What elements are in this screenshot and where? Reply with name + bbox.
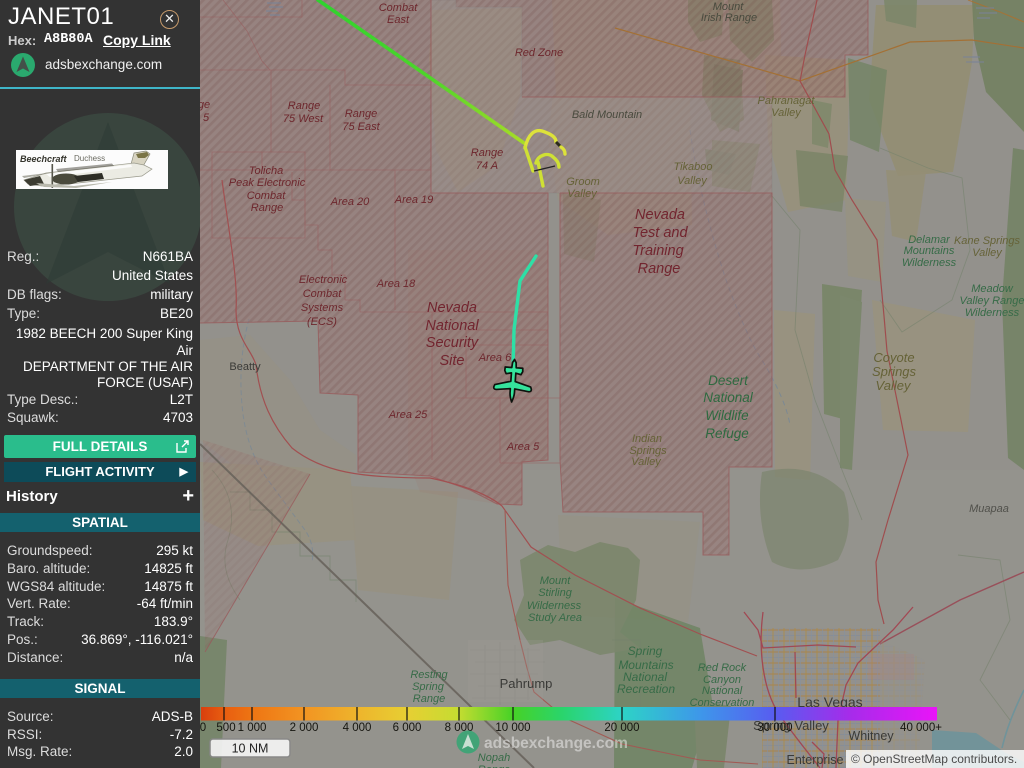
svg-text:4 000: 4 000 (343, 722, 372, 734)
svg-text:Duchess: Duchess (74, 154, 105, 163)
svg-text:10 000: 10 000 (495, 722, 530, 734)
svg-text:Beechcraft: Beechcraft (20, 154, 68, 164)
svg-text:0: 0 (200, 722, 206, 734)
svg-text:40 000+: 40 000+ (900, 722, 942, 734)
svg-text:500: 500 (216, 722, 235, 734)
svg-text:10 NM: 10 NM (232, 742, 269, 756)
svg-text:© OpenStreetMap contributors.: © OpenStreetMap contributors. (851, 752, 1017, 766)
svg-text:20 000: 20 000 (604, 722, 639, 734)
svg-text:adsbexchange.com: adsbexchange.com (484, 735, 628, 752)
svg-text:2 000: 2 000 (290, 722, 319, 734)
svg-text:1 000: 1 000 (238, 722, 267, 734)
svg-text:30 000: 30 000 (757, 722, 792, 734)
svg-text:6 000: 6 000 (393, 722, 422, 734)
